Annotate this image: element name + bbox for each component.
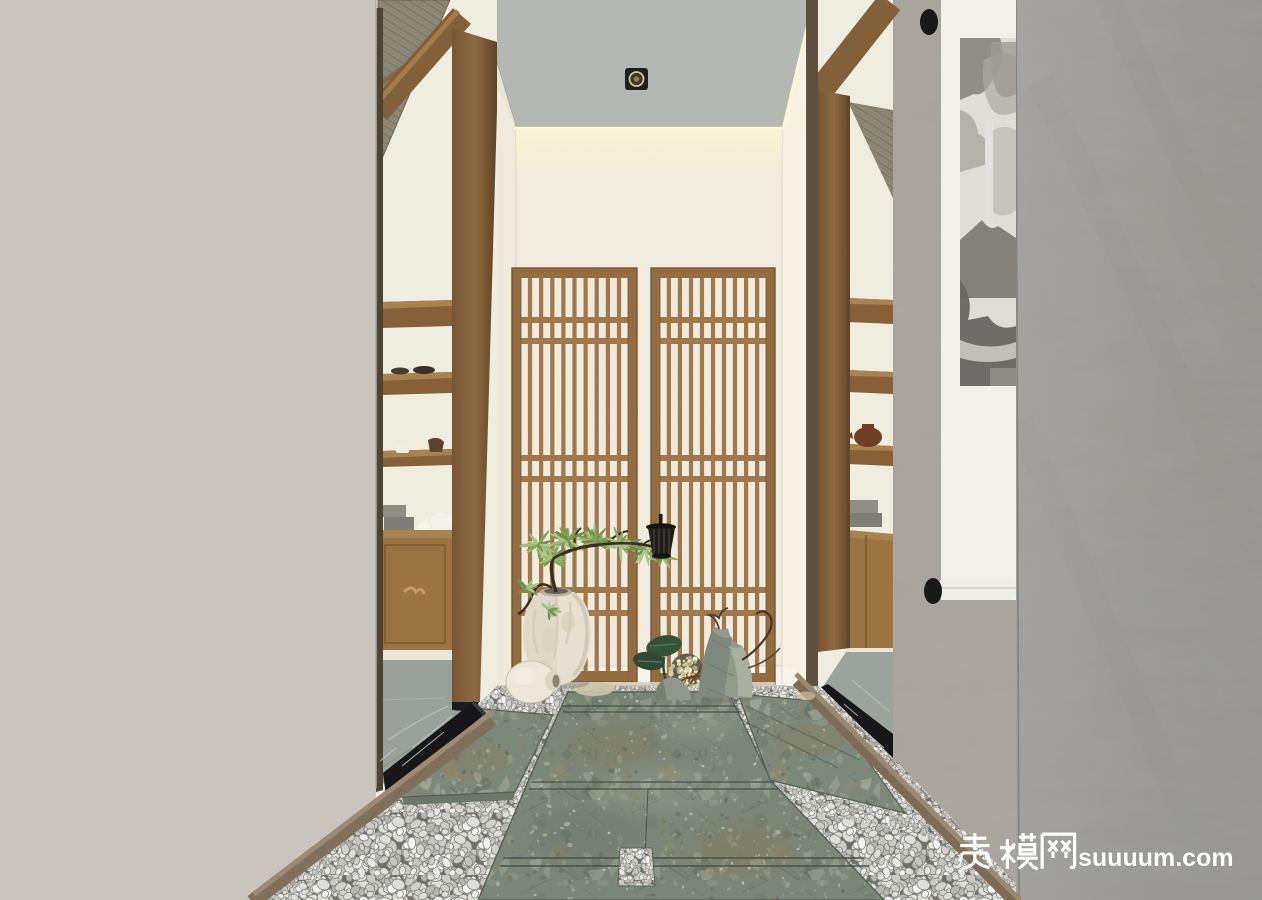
svg-text:suuuum.com: suuuum.com bbox=[1078, 844, 1234, 872]
